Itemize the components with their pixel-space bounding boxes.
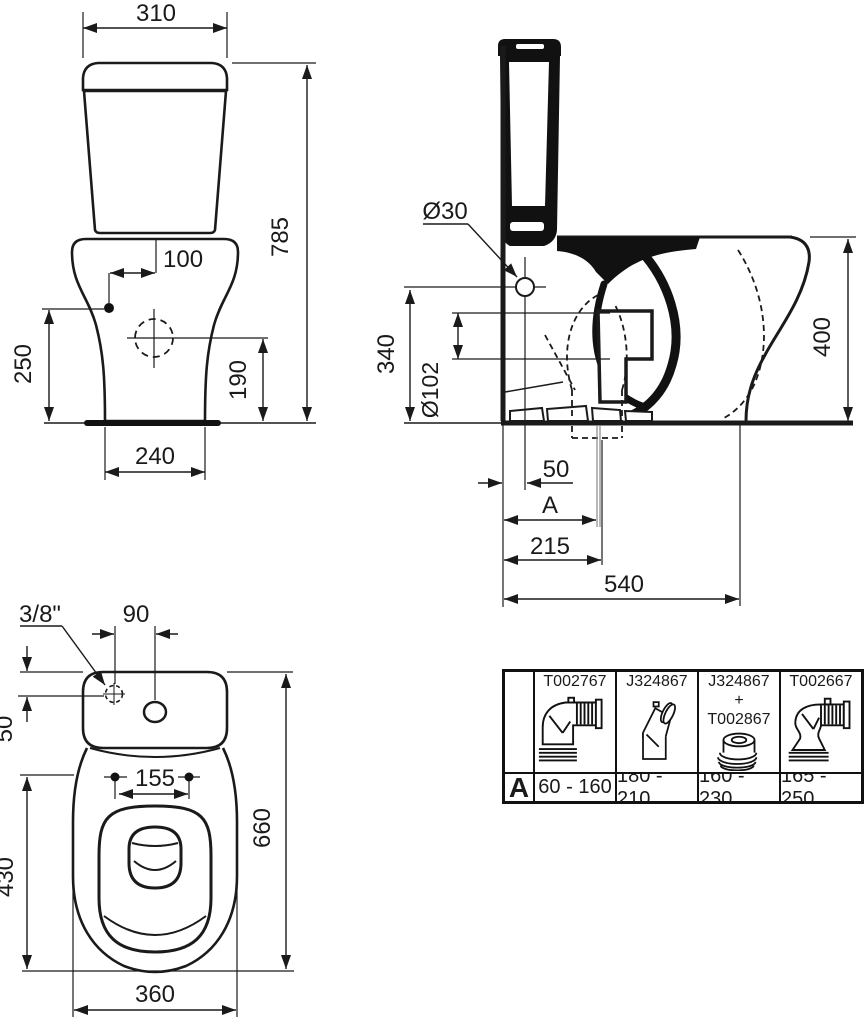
tank-hole-plan: [144, 702, 166, 722]
cistern-lid-front: [83, 63, 227, 90]
dim-total-length: 660: [249, 808, 276, 848]
dim-inlet-offset-side: 50: [543, 456, 570, 483]
base-bar: [84, 420, 221, 426]
row-label: A: [509, 772, 529, 801]
row-label-cell: A: [505, 772, 533, 801]
connector-col-4: T002667: [779, 672, 861, 772]
part-number-plus: +: [734, 691, 743, 710]
part-number: T002767: [543, 672, 606, 691]
cistern-body-front: [84, 91, 226, 233]
dim-base-width: 240: [135, 443, 175, 470]
range-cell-4: 165 - 250: [779, 772, 861, 801]
dim-tank-width: 310: [136, 0, 176, 27]
connector-col-1: T002767: [533, 672, 615, 772]
range-cell-1: 60 - 160: [533, 772, 615, 801]
range-value: 60 - 160: [538, 776, 611, 799]
dim-bowl-length: 430: [0, 857, 19, 897]
part-number-line2: T002867: [707, 710, 770, 729]
range-value: 165 - 250: [781, 772, 861, 801]
dim-rim-height: 400: [809, 317, 836, 357]
table-corner-cell: [505, 672, 533, 772]
dim-inlet-height: 250: [10, 344, 37, 384]
s-bend-pipe-icon: [781, 691, 861, 772]
connector-col-2: J324867: [615, 672, 697, 772]
dim-fixing-height: 190: [225, 360, 252, 400]
dim-inlet-hole-height: 340: [373, 334, 400, 374]
technical-drawing-canvas: 310 785 100 250 190 240: [0, 0, 864, 1024]
supply-thread-leader: [62, 626, 105, 685]
part-number: T002667: [789, 672, 852, 691]
dim-seat-hole-spacing: 155: [135, 765, 175, 792]
dim-outlet-distance: 215: [530, 533, 570, 560]
dim-total-depth: 540: [604, 571, 644, 598]
dim-inlet-offset-x: 100: [163, 246, 203, 273]
dim-inlet-spacing: 90: [123, 601, 150, 628]
part-number-line1: J324867: [708, 672, 769, 691]
part-number: J324867: [626, 672, 687, 691]
dim-supply-offset: 50: [0, 716, 18, 743]
dim-outlet-var: A: [542, 492, 558, 519]
dimension-drawing: 310 785 100 250 190 240: [0, 0, 864, 1024]
dim-bowl-width: 360: [135, 981, 175, 1008]
range-cell-2: 180 - 210: [615, 772, 697, 801]
elbow-pipe-icon: [535, 691, 615, 772]
connector-col-3: J324867 + T002867: [697, 672, 779, 772]
dim-outlet-dia: Ø102: [417, 362, 443, 418]
inlet-hole-circle: [516, 278, 534, 296]
dim-total-height: 785: [267, 217, 294, 257]
offset-ring-icon: [699, 728, 779, 772]
range-value: 160 - 230: [699, 772, 779, 801]
side-view: [404, 39, 856, 607]
bowl-opening-plan: [129, 827, 181, 888]
supply-inlet-point: [104, 303, 114, 313]
range-value: 180 - 210: [617, 772, 697, 801]
range-cell-3: 160 - 230: [697, 772, 779, 801]
angled-adapter-icon: [617, 691, 697, 772]
dim-inlet-hole-dia: Ø30: [422, 198, 467, 225]
pedestal-front: [72, 239, 238, 421]
dim-supply-thread: 3/8": [19, 601, 61, 628]
connector-table: T002767 J324867 J324867: [502, 669, 864, 804]
